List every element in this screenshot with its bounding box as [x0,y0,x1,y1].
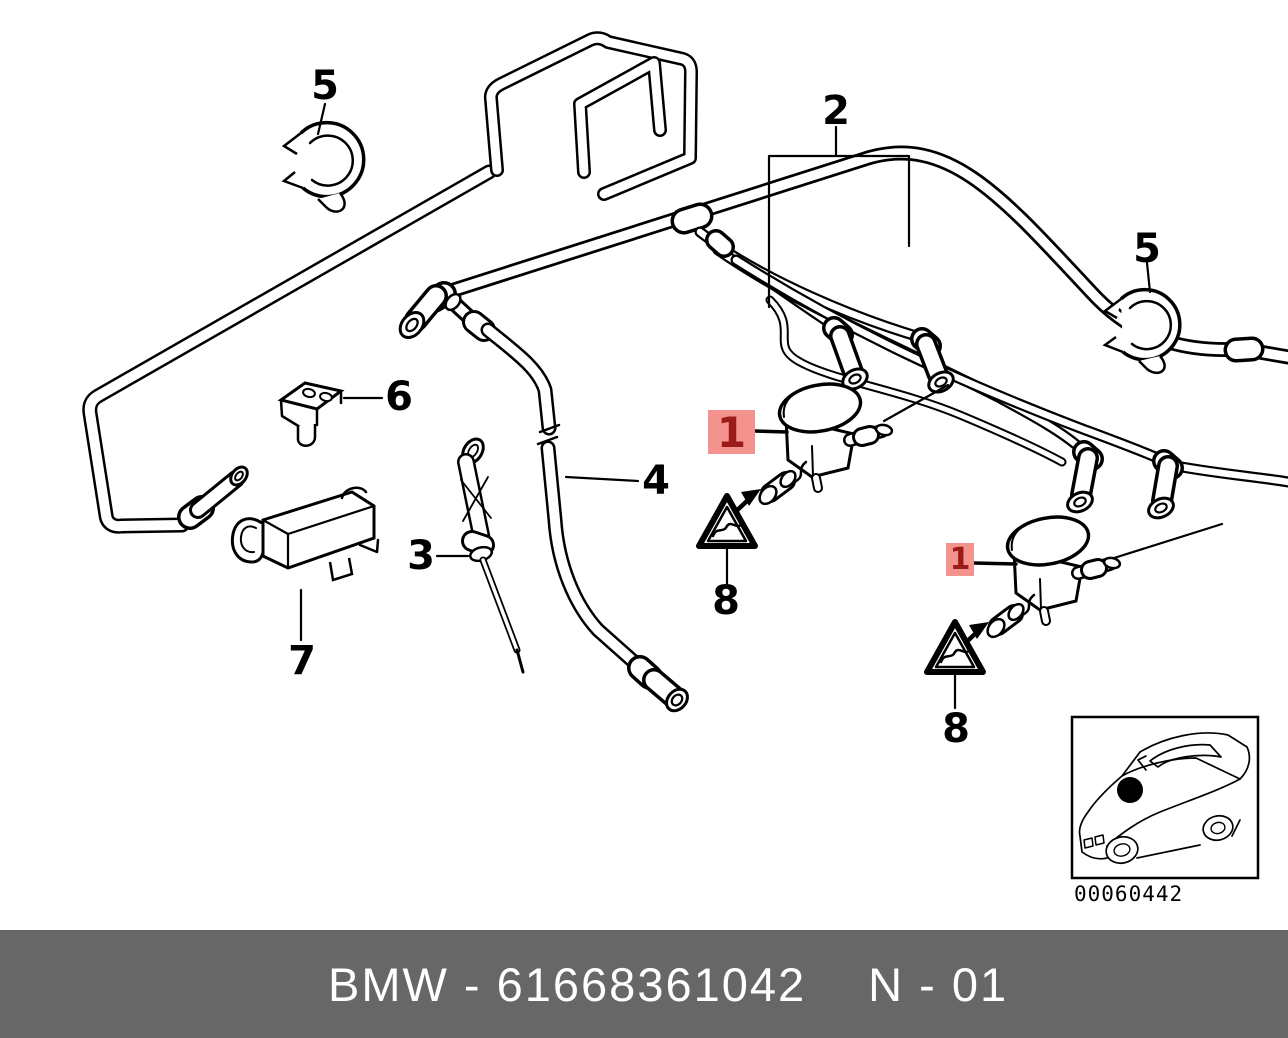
parts-diagram-stage: 5 2 5 6 4 3 7 8 8 1 1 00060442 BMW - 616… [0,0,1288,1038]
callout-1-lower-highlighted[interactable]: 1 [946,543,974,576]
callout-5-right[interactable]: 5 [1133,229,1161,269]
elbow-fittings-lower [1064,452,1176,522]
elbow-fittings-upper [834,328,957,396]
hose-loop-top [491,38,691,194]
footer-bar: BMW - 61668361042 N - 01 [0,930,1288,1038]
callout-5-left[interactable]: 5 [311,66,339,106]
hose-clamp-right [1105,290,1180,373]
holder-bracket-part7 [232,488,378,580]
callout-6[interactable]: 6 [385,377,413,417]
callout-2[interactable]: 2 [822,91,850,131]
callout-1-upper-highlighted[interactable]: 1 [708,410,755,454]
callout-3[interactable]: 3 [407,536,435,576]
diagram-image-number: 00060442 [1074,882,1183,906]
car-location-inset [1072,717,1258,878]
callout-8-upper[interactable]: 8 [712,581,740,621]
callout-7[interactable]: 7 [288,641,316,681]
hose-long-left [90,172,489,526]
callout-8-lower[interactable]: 8 [942,709,970,749]
footer-part-number: BMW - 61668361042 [328,957,806,1012]
footer-sheet-number: N - 01 [868,957,1008,1012]
mount-clip-part6 [281,383,341,446]
callout-4[interactable]: 4 [642,461,670,501]
hose-clamp-left [284,123,364,212]
location-dot [1117,777,1143,803]
probe-part3 [458,435,523,672]
